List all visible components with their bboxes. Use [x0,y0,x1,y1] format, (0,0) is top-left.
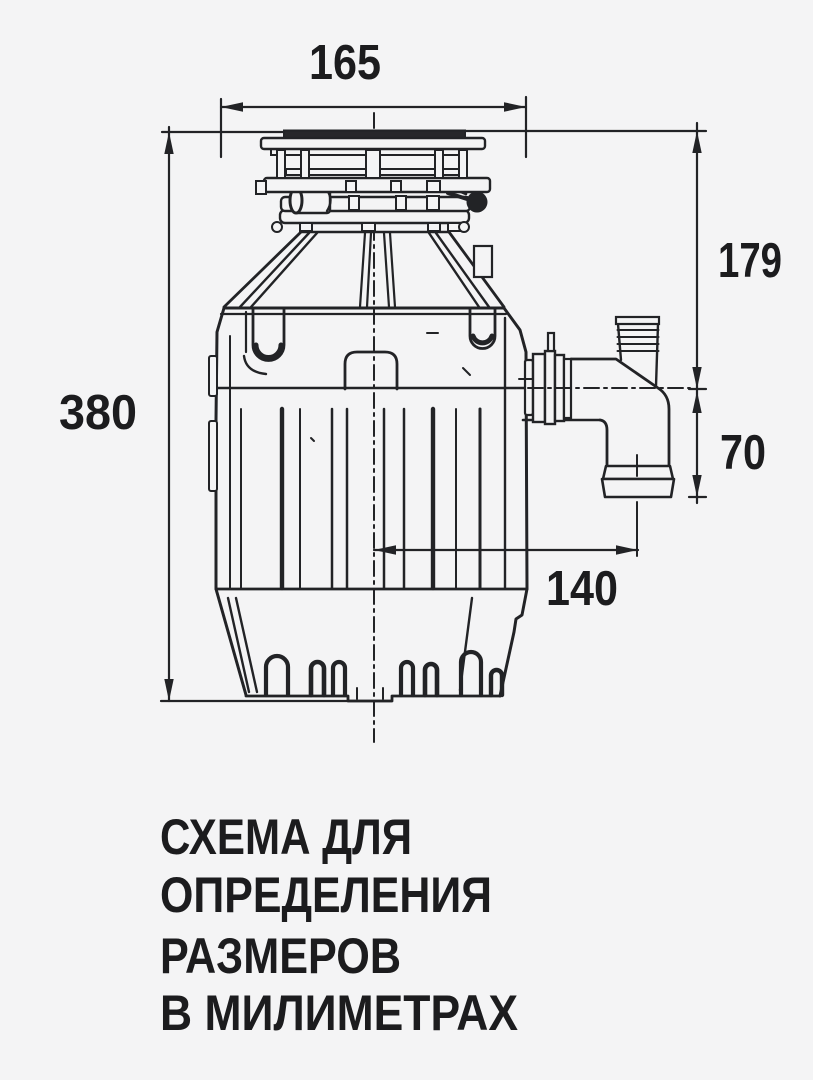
svg-text:ОПРЕДЕЛЕНИЯ: ОПРЕДЕЛЕНИЯ [160,867,492,923]
svg-text:В МИЛИМЕТРАХ: В МИЛИМЕТРАХ [160,985,518,1041]
svg-text:140: 140 [546,562,618,616]
svg-text:165: 165 [309,36,381,90]
svg-text:380: 380 [59,386,137,440]
svg-text:70: 70 [720,426,766,480]
svg-text:СХЕМА ДЛЯ: СХЕМА ДЛЯ [160,809,412,865]
svg-text:РАЗМЕРОВ: РАЗМЕРОВ [160,928,401,984]
svg-text:179: 179 [718,234,782,288]
